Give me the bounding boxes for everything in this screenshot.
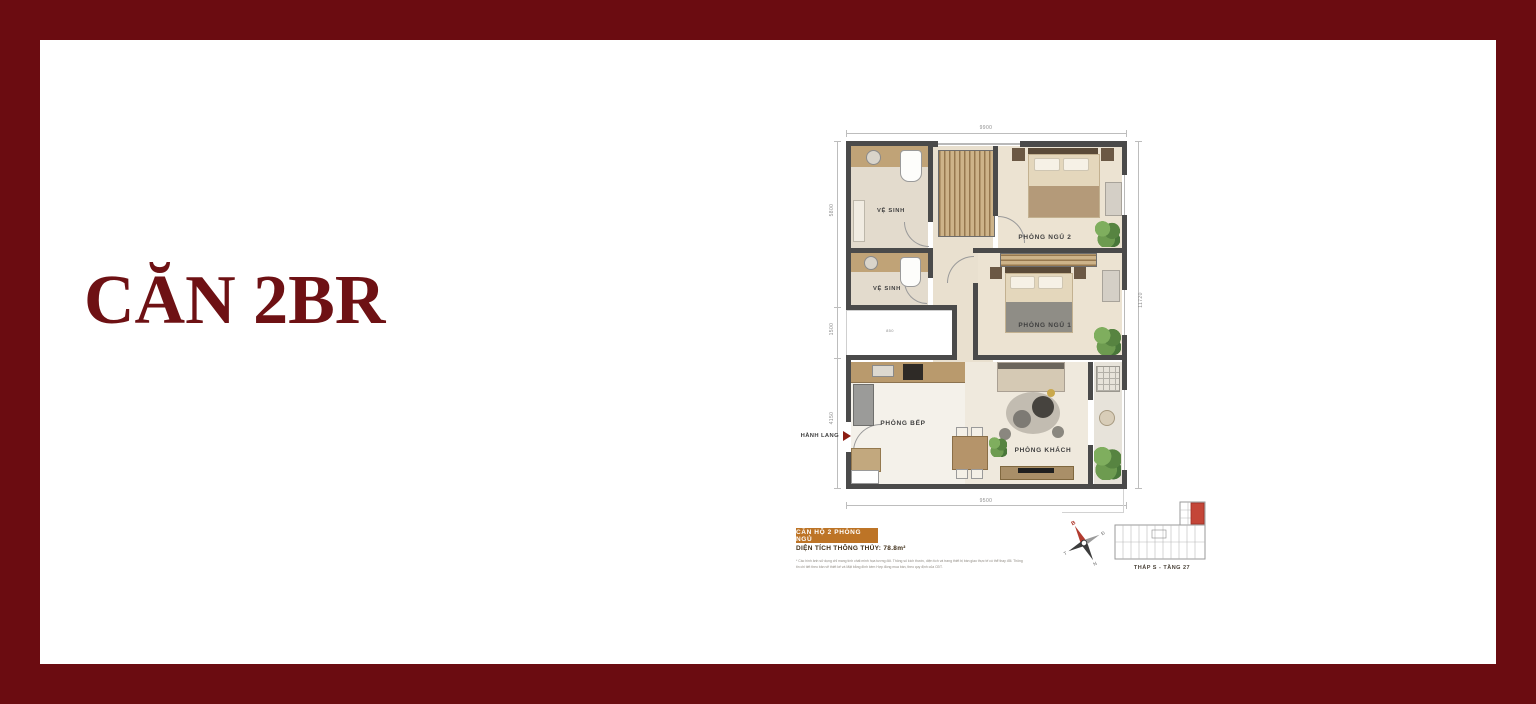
dimension-label-left-middle: 1500 <box>829 314 835 344</box>
kitchen-lower-cabinet <box>851 448 881 472</box>
window-top <box>938 143 1020 145</box>
wall-niche-top <box>846 305 957 310</box>
bedroom-1-desk <box>1102 270 1120 302</box>
wall-bedroom1-left-b <box>973 283 978 360</box>
living-coffee-table-gray <box>1013 410 1031 428</box>
disclaimer-line-2: tin chi tiết theo bản vẽ thiết kế và Mặt… <box>796 565 943 569</box>
bedroom-2-plant <box>1095 221 1120 247</box>
living-pouf-right <box>1052 426 1064 438</box>
dimension-label-right: 11720 <box>1138 285 1144 315</box>
wall-niche-right <box>952 310 957 355</box>
bedroom-1-nightstand-left <box>990 267 1002 279</box>
hallway-label: HÀNH LANG <box>791 433 839 439</box>
dim-tick <box>834 488 841 489</box>
room-label-bedroom-2: PHÒNG NGỦ 2 <box>1000 234 1090 241</box>
page: { "frame": { "border_color": "#6b0c11" }… <box>0 0 1536 704</box>
balcony-ac-ledge <box>1096 366 1120 392</box>
wall-bath-right-b <box>928 248 933 278</box>
bedroom-1-pillow-left <box>1010 276 1035 289</box>
dimension-line-bottom <box>846 505 1127 506</box>
wall-balcony-b <box>1088 445 1093 484</box>
dim-tick <box>1135 488 1142 489</box>
bathroom-1-toilet <box>900 150 922 182</box>
wall-living-top <box>978 355 1122 360</box>
living-accent-gold <box>1047 389 1055 397</box>
dim-tick <box>1126 130 1127 137</box>
bedroom-1-plant <box>1094 327 1121 355</box>
bedroom-2-pillow-right <box>1063 158 1089 171</box>
wall-balcony-a <box>1088 362 1093 400</box>
kitchen-stove <box>903 364 923 380</box>
dim-tick <box>834 141 841 142</box>
dining-chair-bottom-left <box>956 469 968 479</box>
bathroom-2-toilet <box>900 257 921 287</box>
niche-dimension-label: 850 <box>870 328 910 333</box>
dim-tick <box>834 358 841 359</box>
room-label-kitchen: PHÒNG BẾP <box>872 420 934 427</box>
compass-west-label: T <box>1063 550 1068 556</box>
window-right-balcony-glass <box>1124 390 1125 470</box>
living-sofa <box>997 362 1065 392</box>
bedroom-1-pillow-right <box>1038 276 1063 289</box>
dining-table <box>952 436 988 470</box>
bedroom-2-pillow-left <box>1034 158 1060 171</box>
compass-south-label: N <box>1092 561 1097 567</box>
compass-icon: B Đ N T <box>1058 517 1110 569</box>
wall-bedroom2-bottom <box>978 248 1122 253</box>
balcony-chair <box>1099 410 1115 426</box>
dim-tick <box>1135 141 1142 142</box>
bathroom-1-sink <box>866 150 881 165</box>
kitchen-fridge <box>853 384 874 426</box>
bedroom-2-desk <box>1105 182 1122 216</box>
wall-niche-bottom <box>846 355 957 360</box>
wall-bath-right-a <box>928 146 933 222</box>
room-label-bathroom-1: VỆ SINH <box>862 208 920 214</box>
window-right-bedroom1-glass <box>1124 290 1125 335</box>
wall-bedroom2-left <box>993 146 998 216</box>
hallway-arrow-icon <box>843 431 851 441</box>
dim-tick <box>846 502 847 509</box>
dimension-line-right <box>1138 141 1139 489</box>
corridor-wardrobe <box>938 150 995 237</box>
wall-top-right <box>1020 141 1127 147</box>
disclaimer-line-1: * Các hình ảnh sử dụng chỉ mang tính chấ… <box>796 559 1023 563</box>
compass-east-label: Đ <box>1100 530 1106 536</box>
balcony-plant <box>1094 446 1121 480</box>
dimension-label-left-lower: 4150 <box>829 403 835 433</box>
dimension-label-top: 9900 <box>946 125 1026 131</box>
dining-chair-bottom-right <box>971 469 983 479</box>
keyplan-caption: THÁP S - TẦNG 27 <box>1112 565 1212 571</box>
room-label-bedroom-1: PHÒNG NGỦ 1 <box>1000 322 1090 329</box>
dimension-label-bottom: 9500 <box>946 498 1026 504</box>
dim-tick <box>834 307 841 308</box>
bedroom-1-wardrobe <box>1000 253 1097 267</box>
area-text: DIỆN TÍCH THÔNG THỦY: 78.8m² <box>796 545 906 552</box>
wall-bedroom1-left-a <box>973 248 978 253</box>
dimension-label-left-upper: 5800 <box>829 195 835 225</box>
tv-screen <box>1018 468 1054 473</box>
bathroom-1-shower <box>853 200 865 242</box>
room-label-bathroom-2: VỆ SINH <box>858 286 916 292</box>
keyplan-highlighted-unit <box>1191 503 1204 524</box>
floor-plan: 850 PHÒNG NGỦ 2 <box>0 0 1536 704</box>
window-right-bedroom2-glass <box>1124 175 1125 215</box>
entry-niche <box>846 310 954 357</box>
dim-tick <box>846 130 847 137</box>
dimension-line-top <box>846 133 1127 134</box>
bedroom-2-nightstand-left <box>1012 148 1025 161</box>
bathroom-2-sink <box>864 256 878 270</box>
room-label-living: PHÒNG KHÁCH <box>1000 447 1086 454</box>
bedroom-1-nightstand-right <box>1074 267 1086 279</box>
wall-bottom <box>846 484 1127 489</box>
keyplan-floorplate <box>1112 497 1212 563</box>
unit-type-badge: CĂN HỘ 2 PHÒNG NGỦ <box>796 528 878 543</box>
kitchen-washer <box>851 470 879 484</box>
compass-north-label: B <box>1071 520 1077 527</box>
kitchen-sink <box>872 365 894 377</box>
bedroom-2-nightstand-right <box>1101 148 1114 161</box>
living-coffee-table-dark <box>1032 396 1054 418</box>
